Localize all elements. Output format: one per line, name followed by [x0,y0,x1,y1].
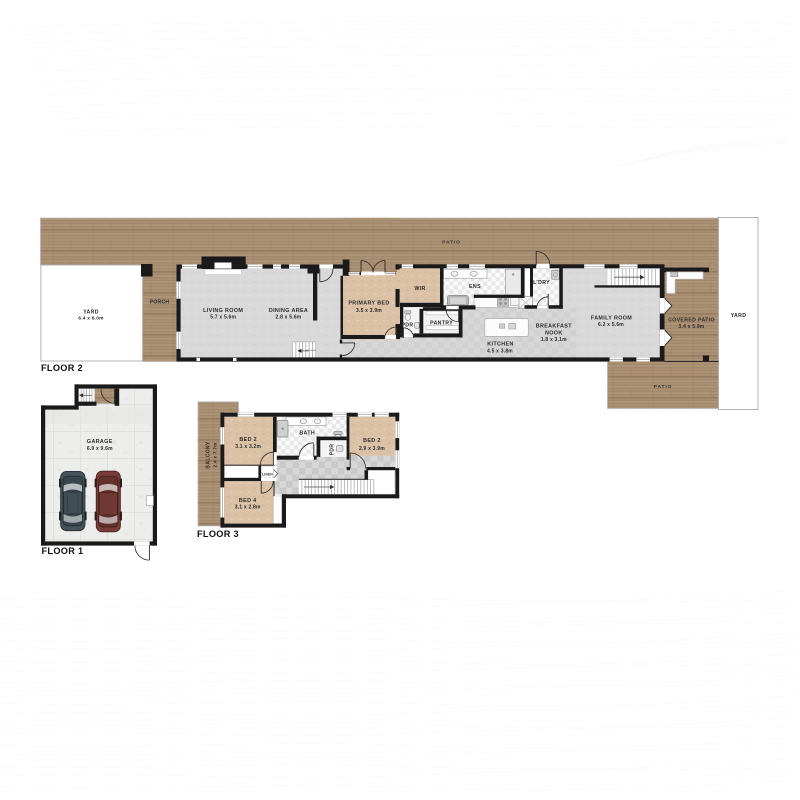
svg-text:WIR: WIR [414,286,425,292]
svg-text:3.1 x 2.8m: 3.1 x 2.8m [235,505,261,511]
svg-text:PDR: PDR [330,444,336,456]
svg-text:PANTRY: PANTRY [430,321,453,327]
svg-text:4.5 x 3.8m: 4.5 x 3.8m [487,349,513,355]
svg-text:FLOOR 3: FLOOR 3 [197,529,239,539]
svg-text:1.8 x 3.1m: 1.8 x 3.1m [541,337,567,343]
svg-text:PDR: PDR [401,322,413,328]
svg-text:BREAKFAST: BREAKFAST [536,324,572,330]
svg-text:3.4 x 5.9m: 3.4 x 5.9m [679,324,705,330]
svg-text:3.5 x 3.9m: 3.5 x 3.9m [356,308,382,314]
svg-text:LINEN: LINEN [262,472,273,476]
svg-text:ENS: ENS [469,284,481,290]
svg-text:PORCH: PORCH [150,300,170,306]
svg-text:6.4 x 6.0m: 6.4 x 6.0m [78,316,104,322]
svg-text:2.8 x 5.6m: 2.8 x 5.6m [276,315,302,321]
svg-text:3.1 x 3.2m: 3.1 x 3.2m [235,444,261,450]
svg-text:BED 2: BED 2 [239,437,257,443]
svg-text:6.2 x 5.6m: 6.2 x 5.6m [598,322,624,328]
svg-text:L’DRY: L’DRY [533,280,550,286]
svg-text:FAMILY ROOM: FAMILY ROOM [591,316,632,322]
svg-text:2.4 x 7.7m: 2.4 x 7.7m [213,443,219,468]
svg-text:FLOOR 2: FLOOR 2 [41,363,83,373]
svg-text:PATIO: PATIO [442,239,461,245]
svg-text:KITCHEN: KITCHEN [487,342,513,348]
svg-text:BALCONY: BALCONY [206,441,212,468]
svg-text:GARAGE: GARAGE [87,439,113,445]
svg-text:BED 2: BED 2 [363,438,381,444]
svg-text:FLOOR 1: FLOOR 1 [42,546,84,556]
svg-text:BED 4: BED 4 [239,498,257,504]
svg-text:NOOK: NOOK [545,331,563,337]
svg-text:LIVING ROOM: LIVING ROOM [203,308,243,314]
svg-text:COVERED PATIO: COVERED PATIO [668,317,715,323]
svg-text:YARD: YARD [731,313,747,319]
svg-text:BATH: BATH [299,431,315,437]
svg-text:6.9 x 9.6m: 6.9 x 9.6m [87,446,113,452]
svg-text:PATIO: PATIO [654,384,673,390]
svg-text:5.7 x 5.6m: 5.7 x 5.6m [210,315,236,321]
svg-text:YARD: YARD [83,309,99,315]
svg-text:DINING AREA: DINING AREA [269,308,308,314]
svg-text:PRIMARY BED: PRIMARY BED [348,301,389,307]
svg-text:2.9 x 3.9m: 2.9 x 3.9m [359,446,385,452]
